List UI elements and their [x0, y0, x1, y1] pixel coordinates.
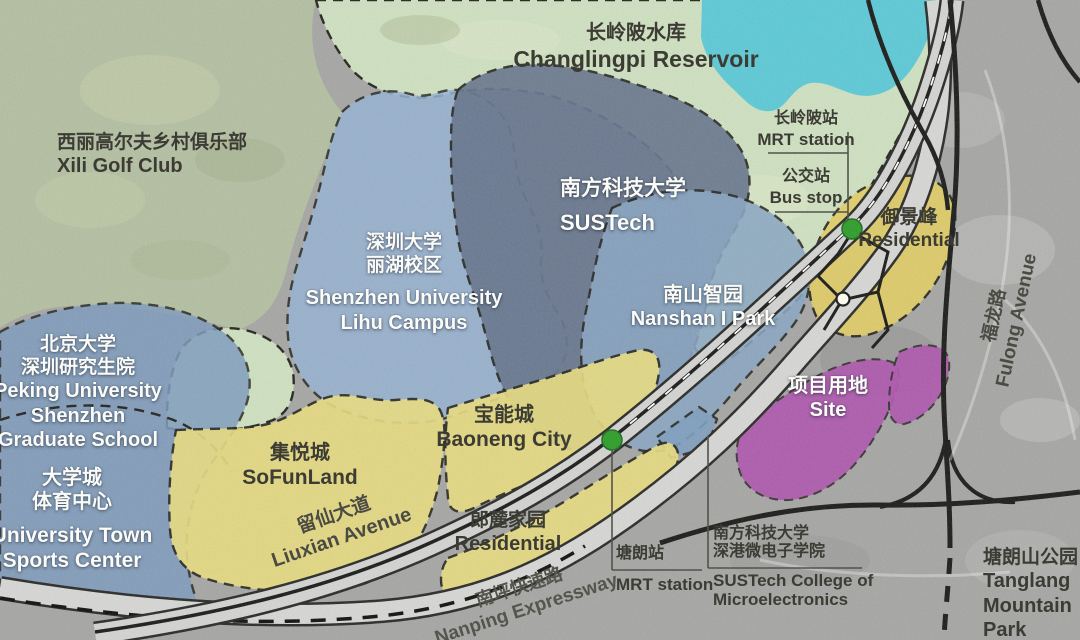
map-canvas: 西丽高尔夫乡村俱乐部 Xili Golf Club 长岭陂水库 Changlin…	[0, 0, 1080, 640]
label-yujingfeng-residential: 御景峰 Residential	[858, 206, 959, 252]
label-szu-lihu: 深圳大学 丽湖校区 Shenzhen University Lihu Campu…	[306, 231, 503, 335]
label-baoneng-city: 宝能城 Baoneng City	[436, 403, 571, 453]
label-changlingpi-reservoir: 长岭陂水库 Changlingpi Reservoir	[513, 21, 758, 73]
label-tanglang-park: 塘朗山公园 Tanglang Mountain Park	[983, 546, 1078, 640]
label-microelectronics: 南方科技大学 深港微电子学院 SUSTech College of Microe…	[713, 525, 873, 610]
label-bus-stop: 公交站 Bus stop	[770, 167, 843, 208]
label-changlingpi-station: 长岭陂站 MRT station	[757, 109, 854, 150]
label-xili-golf: 西丽高尔夫乡村俱乐部 Xili Golf Club	[57, 131, 247, 179]
label-sports-center: 大学城 体育中心 University Town Sports Center	[0, 466, 152, 574]
label-sustech: 南方科技大学 SUSTech	[560, 176, 686, 236]
label-tanglang-station: 塘朗站 MRT station	[616, 544, 713, 595]
label-site: 项目用地 Site	[788, 374, 868, 423]
label-langlu-residential: 郎麓家园 Residential	[455, 509, 562, 557]
label-pku: 北京大学 深圳研究生院 Peking University Shenzhen G…	[0, 333, 162, 453]
label-sofunland: 集悦城 SoFunLand	[242, 441, 357, 491]
label-nanshan-i-park: 南山智园 Nanshan I Park	[631, 283, 776, 332]
